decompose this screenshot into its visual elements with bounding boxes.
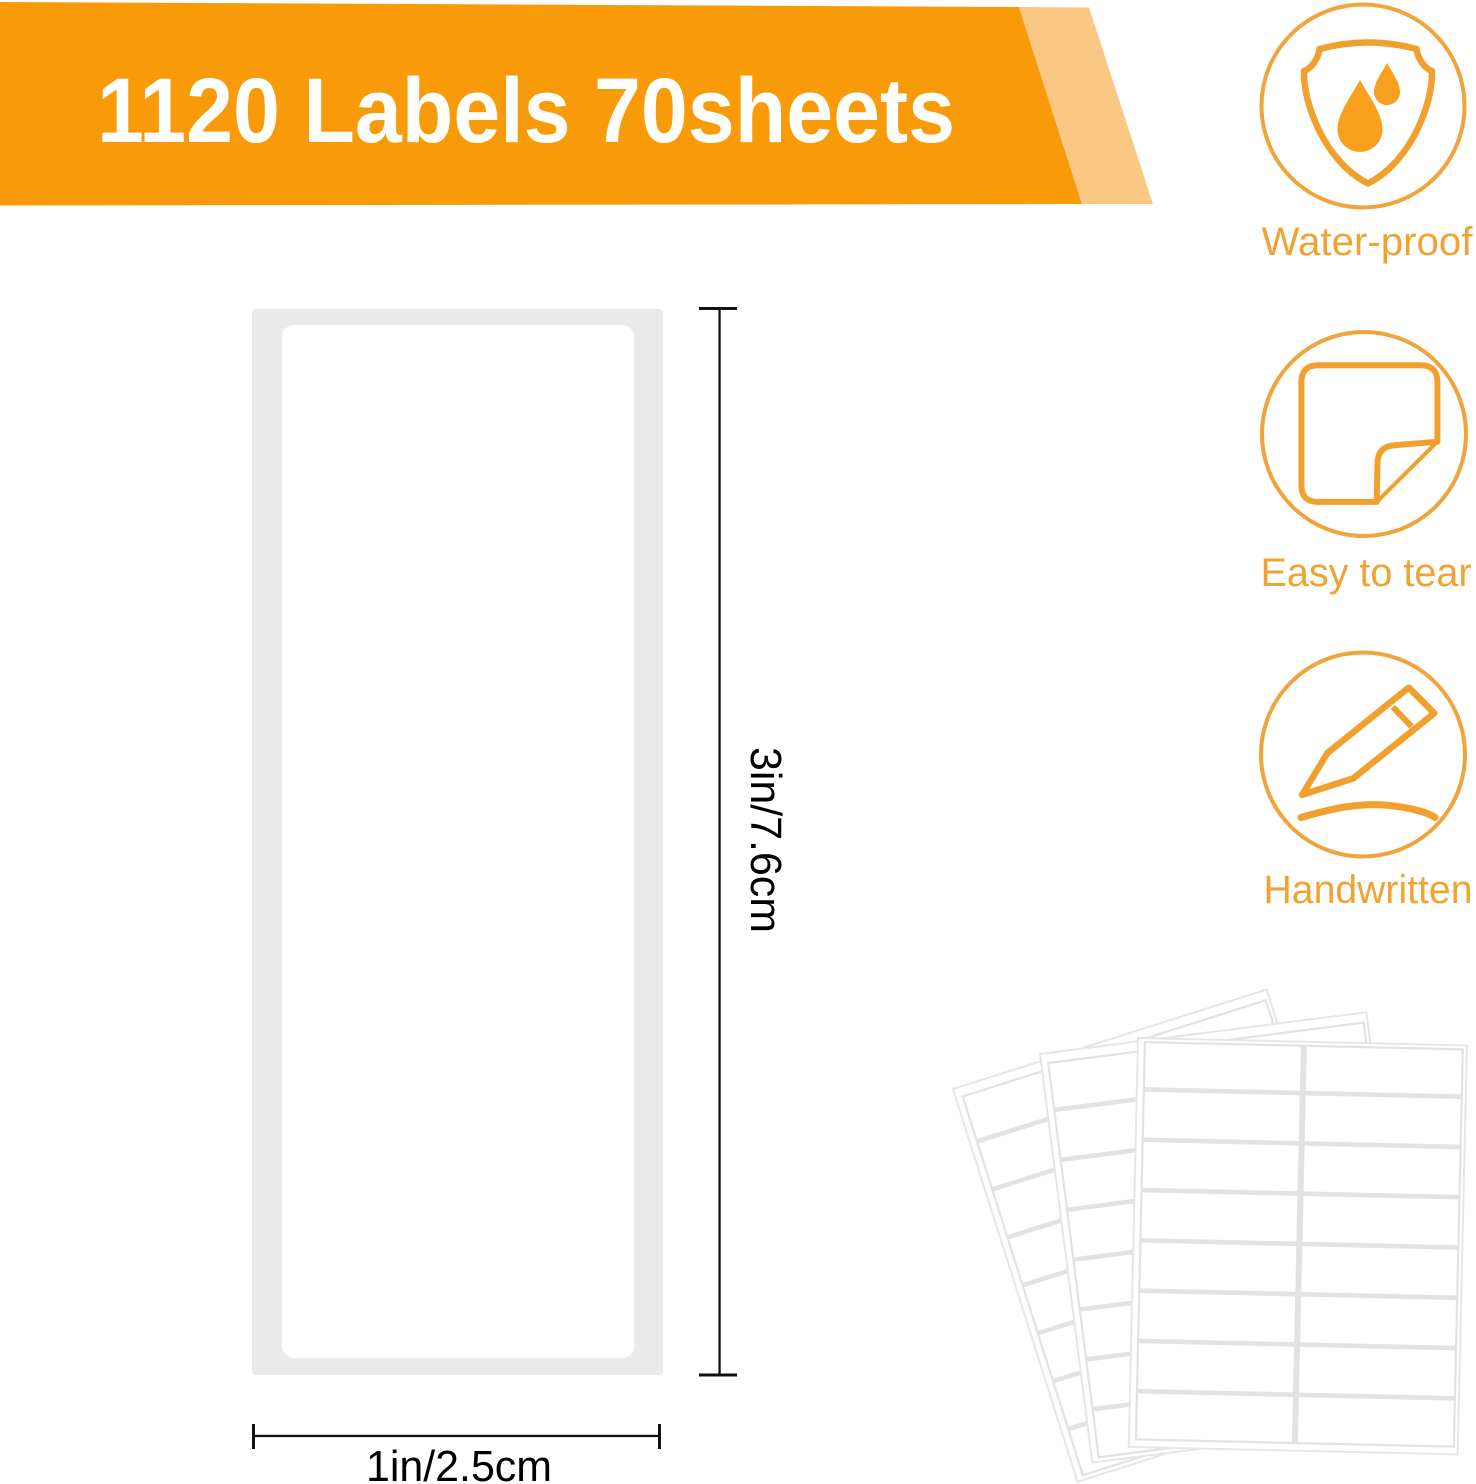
svg-text:Easy to tear: Easy to tear [1261,551,1472,595]
svg-text:3in/7.6cm: 3in/7.6cm [741,747,790,933]
svg-text:1120 Labels 70sheets: 1120 Labels 70sheets [97,60,955,162]
svg-text:Handwritten: Handwritten [1264,868,1473,912]
svg-text:1in/2.5cm: 1in/2.5cm [366,1442,552,1484]
svg-text:Water-proof: Water-proof [1262,220,1474,264]
